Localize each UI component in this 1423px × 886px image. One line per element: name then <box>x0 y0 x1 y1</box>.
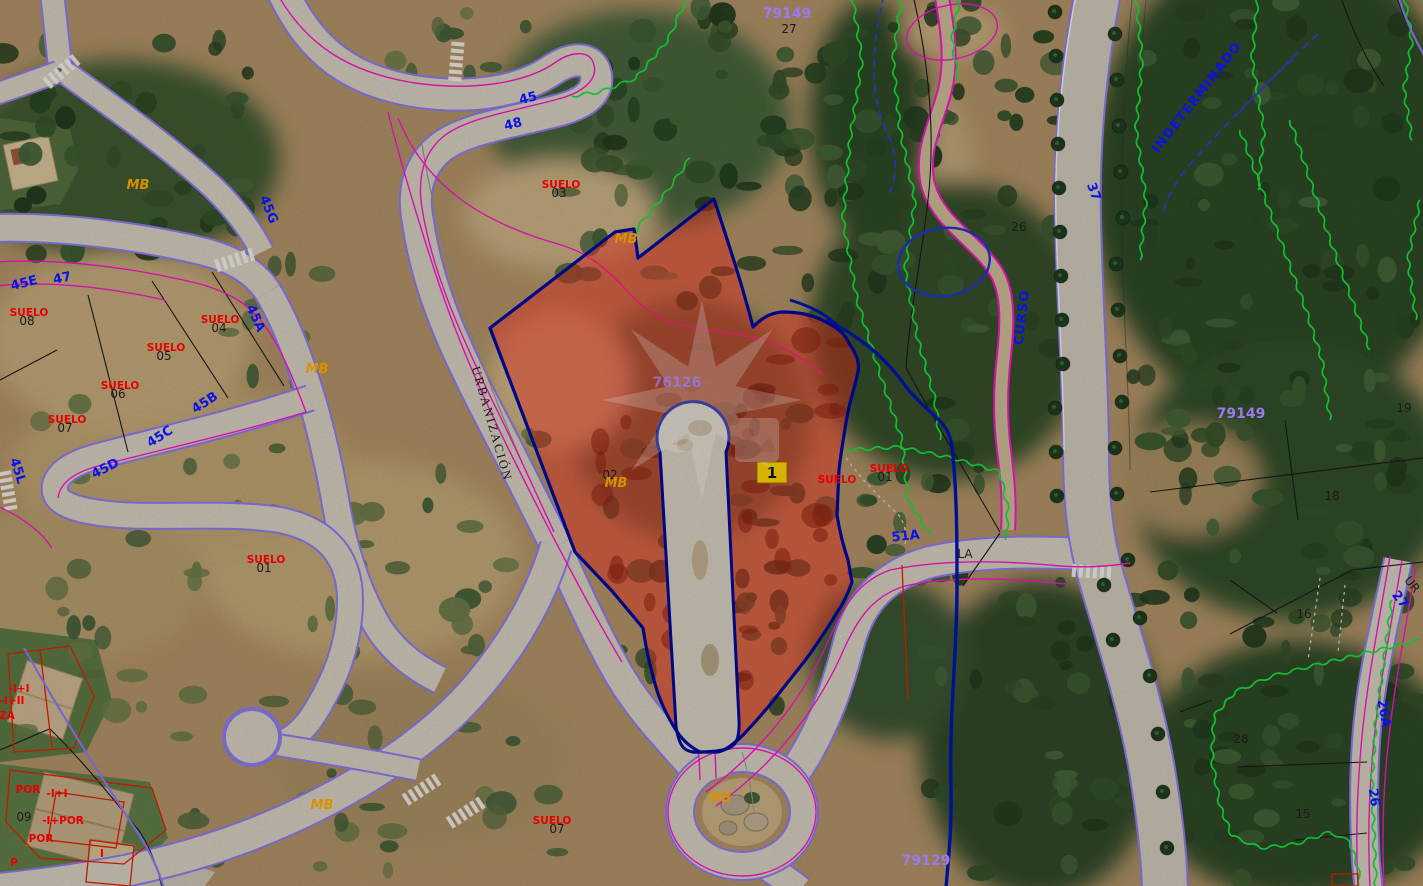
map-label: P <box>10 857 18 869</box>
map-label: 28 <box>1233 732 1248 746</box>
map-label: 76126 <box>653 375 702 391</box>
map-label: MB <box>615 232 638 247</box>
map-canvas[interactable]: 1 4745E45A45B45C45D45L45G454851A372726A2… <box>0 0 1423 886</box>
map-label: SUELO <box>48 414 87 426</box>
map-label: -I+I <box>9 683 30 695</box>
map-label: I <box>100 848 104 860</box>
map-label: 19 <box>1396 401 1411 415</box>
map-label: 79149 <box>1217 406 1266 422</box>
map-viewport: 1 4745E45A45B45C45D45L45G454851A372726A2… <box>0 0 1423 886</box>
map-label: SUELO <box>147 342 186 354</box>
map-label: MB <box>709 791 732 806</box>
map-label: -I+I <box>47 788 68 800</box>
map-label: MB <box>311 798 334 813</box>
map-label: -I+II <box>0 695 24 707</box>
map-label: MB <box>127 178 150 193</box>
map-label: 51A <box>891 528 921 546</box>
map-label: SUELO <box>247 554 286 566</box>
map-label: 79149 <box>763 6 812 22</box>
map-label: 18 <box>1324 489 1339 503</box>
map-label: SUELO <box>201 314 240 326</box>
map-label: POR <box>29 833 54 845</box>
noise-overlay <box>0 0 1423 886</box>
map-label: LA <box>957 547 973 561</box>
map-label: 16 <box>1296 607 1311 621</box>
map-label: SUELO <box>10 307 49 319</box>
map-label: SUELO <box>818 474 857 486</box>
map-label: MB <box>605 476 628 491</box>
map-label: SUELO <box>542 179 581 191</box>
map-label: 15 <box>1295 807 1310 821</box>
map-label: 27 <box>781 22 796 36</box>
map-label: SUELO <box>533 815 572 827</box>
map-label: SUELO <box>870 463 909 475</box>
map-label: -I+POR <box>42 815 84 827</box>
map-label: SUELO <box>101 380 140 392</box>
map-label: MB <box>306 362 329 377</box>
map-label: 26 <box>1011 220 1026 234</box>
map-label: 09 <box>16 810 31 824</box>
map-label: ZA <box>0 710 16 722</box>
map-label: POR <box>16 784 41 796</box>
map-label: 79129 <box>902 853 951 869</box>
map-label: 26 <box>1365 788 1382 808</box>
